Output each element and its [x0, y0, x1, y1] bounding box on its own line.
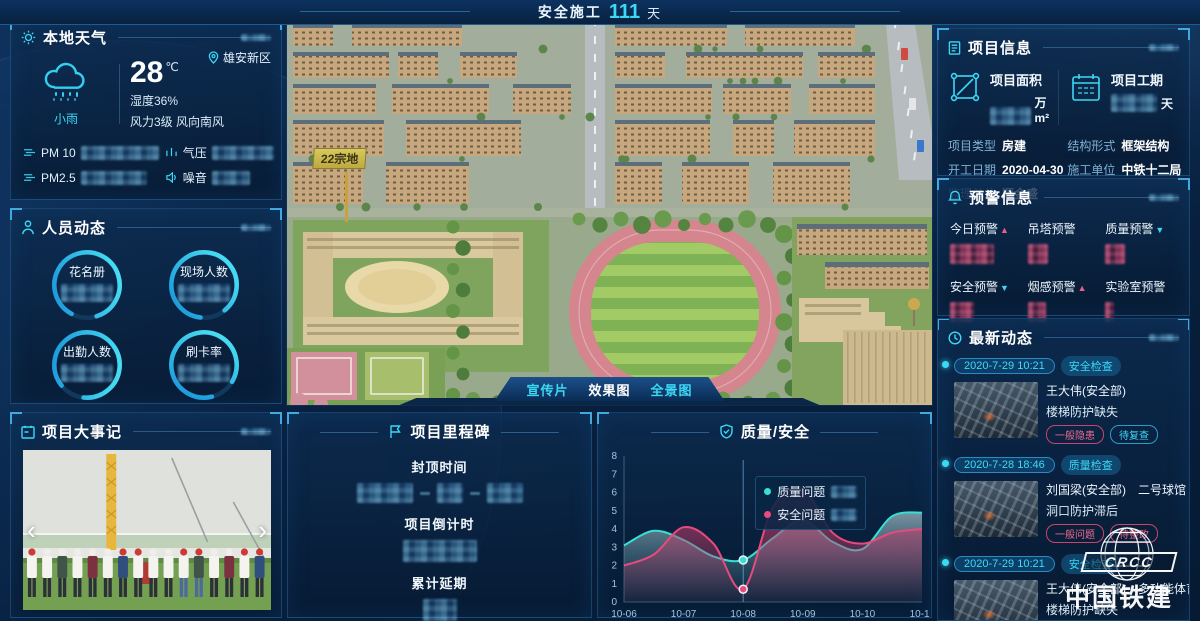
safe-days-unit: 天: [647, 3, 662, 22]
trend-up-icon: ▲: [1000, 225, 1009, 235]
timeline-dot-icon: [942, 460, 949, 467]
panel-title: 项目信息: [968, 37, 1032, 58]
alert-today: 今日预警▲: [950, 220, 1022, 264]
clock-icon: [948, 331, 962, 345]
panel-title: 最新动态: [969, 327, 1033, 348]
feed-issue: 洞口防护滞后: [1046, 502, 1179, 519]
panel-title: 预警信息: [969, 187, 1033, 208]
milestone-topping-time: 封顶时间: [288, 457, 591, 503]
milestone-countdown: 项目倒计时: [288, 514, 591, 562]
field-contractor: 施工单位中铁十二局: [1067, 161, 1181, 178]
document-icon: [948, 41, 961, 55]
panel-latest-feed: 最新动态 2020-7-29 10:21 安全检查 王大伟(安全部) 楼梯防护缺…: [937, 318, 1190, 621]
timeline-dot-icon: [942, 361, 949, 368]
panel-title: 人员动态: [42, 217, 106, 238]
svg-text:1: 1: [611, 579, 617, 590]
quality-safety-chart: 01234567810-0610-0710-0810-0910-1010-11 …: [598, 446, 931, 621]
svg-text:8: 8: [611, 451, 617, 462]
field-structure-form: 结构形式框架结构: [1067, 137, 1181, 154]
tab-panorama[interactable]: 全景图: [651, 380, 693, 399]
feed-time: 2020-7-29 10:21: [954, 556, 1055, 572]
feed-person: 王大伟(安全部): [1046, 382, 1126, 399]
tab-promo-video[interactable]: 宣传片: [526, 380, 568, 399]
gauge-swipe-rate: 刷卡率: [156, 328, 252, 402]
alert-crane: 吊塔预警: [1028, 220, 1100, 264]
divider: [119, 64, 120, 124]
top-header: 安全施工 111 天: [0, 0, 1200, 25]
trend-down-icon: ▼: [1000, 283, 1009, 293]
svg-text:10-08: 10-08: [730, 609, 756, 620]
feed-thumbnail[interactable]: [954, 481, 1038, 537]
stat-project-area: 项目面积 万m²: [948, 70, 1058, 125]
svg-text:10-10: 10-10: [850, 609, 876, 620]
panel-quality-safety: 质量/安全 01234567810-0610-0710-0810-0910-10…: [597, 412, 932, 618]
svg-text:10-09: 10-09: [790, 609, 816, 620]
metric-pressure: 气压: [165, 144, 274, 161]
alert-quality: 质量预警▼: [1105, 220, 1177, 264]
gauge-attendance: 出勤人数: [39, 328, 135, 402]
person-icon: [21, 220, 35, 235]
sun-icon: [21, 30, 36, 45]
temperature-value: 28: [130, 58, 163, 88]
legend-quality: 质量问题: [777, 483, 825, 500]
milestone-delay: 累计延期: [288, 573, 591, 621]
feed-type-badge: 安全检查: [1061, 356, 1121, 376]
feed-person: 刘国梁(安全部): [1046, 481, 1126, 498]
svg-text:6: 6: [611, 488, 617, 499]
panel-title: 项目里程碑: [410, 421, 490, 442]
wind: 风力3级 风向南风: [130, 113, 269, 130]
plot-label: 22宗地: [312, 148, 367, 169]
svg-text:10-07: 10-07: [671, 609, 697, 620]
alert-safety: 安全预警▼: [950, 278, 1022, 322]
location-pin-icon: [208, 51, 219, 64]
scene-tabs: 宣传片 效果图 全景图: [495, 377, 725, 401]
alert-lab: 实验室预警: [1105, 278, 1177, 322]
panel-title: 本地天气: [43, 27, 107, 48]
trend-up-icon: ▲: [1078, 283, 1087, 293]
gauge-onsite: 现场人数: [156, 248, 252, 322]
svg-text:0: 0: [611, 597, 617, 608]
feed-thumbnail[interactable]: [954, 580, 1038, 621]
haze-icon: [23, 172, 36, 183]
metric-pm25: PM2.5: [23, 169, 159, 186]
header-decoration: [133, 426, 271, 438]
severity-tag: 一般问题: [1046, 524, 1104, 543]
feed-time: 2020-7-29 10:21: [954, 358, 1055, 374]
metric-pm10: PM 10: [23, 144, 159, 161]
location-badge: 雄安新区: [208, 49, 271, 66]
svg-text:4: 4: [611, 524, 617, 535]
header-decoration: [1044, 192, 1179, 204]
feed-time: 2020-7-28 18:46: [954, 457, 1055, 473]
event-photo: ‹ ›: [23, 450, 271, 610]
svg-text:10-06: 10-06: [611, 609, 637, 620]
tab-rendering[interactable]: 效果图: [588, 380, 630, 399]
scene-3d-view[interactable]: 22宗地 宣传片 效果图 全景图: [287, 12, 932, 405]
header-decoration: [1044, 332, 1179, 344]
location-name: 雄安新区: [223, 49, 271, 66]
alert-smoke: 烟感预警▲: [1028, 278, 1100, 322]
shield-check-icon: [719, 424, 734, 439]
safe-days-label: 安全施工: [538, 2, 602, 22]
feed-type-badge: 质量检查: [1061, 455, 1121, 475]
panel-project-info: 项目信息 项目面积 万m² 项目工期 天: [937, 28, 1190, 176]
speaker-icon: [165, 172, 178, 183]
svg-text:3: 3: [611, 542, 617, 553]
field-project-type: 项目类型房建: [948, 137, 1063, 154]
legend-safety: 安全问题: [777, 506, 825, 523]
status-tag: 待复查: [1110, 425, 1158, 444]
feed-place: 多功能体育馆: [1138, 580, 1190, 597]
weather-condition: 小雨: [23, 110, 109, 127]
panel-local-weather: 本地天气 雄安新区 小雨 28 ℃ 湿度36% 风: [10, 18, 282, 200]
feed-thumbnail[interactable]: [954, 382, 1038, 438]
feed-item[interactable]: 2020-7-28 18:46 质量检查 刘国梁(安全部)二号球馆 洞口防护滞后…: [954, 455, 1179, 543]
photo-prev-button[interactable]: ‹: [25, 515, 38, 545]
panel-personnel: 人员动态 花名册 现场人数 出勤人数 刷卡率: [10, 208, 282, 404]
metric-noise: 噪音: [165, 169, 274, 186]
svg-text:2: 2: [611, 561, 617, 572]
header-decoration: [118, 32, 271, 44]
calendar-note-icon: [21, 425, 35, 439]
feed-issue: 楼梯防护缺失: [1046, 601, 1179, 618]
svg-text:5: 5: [611, 506, 617, 517]
dashboard-root: 安全施工 111 天 本地天气 雄安新区 小雨: [0, 0, 1200, 621]
panel-title: 项目大事记: [42, 421, 122, 442]
cloud-rain-icon: [40, 61, 92, 103]
flag-icon: [388, 424, 403, 439]
svg-text:10-11: 10-11: [910, 609, 929, 620]
trend-down-icon: ▼: [1155, 225, 1164, 235]
feed-person: 王大伟(安全部): [1046, 580, 1126, 597]
timeline-dot-icon: [942, 559, 949, 566]
calendar-icon: [1069, 70, 1103, 104]
feed-issue: 楼梯防护缺失: [1046, 403, 1179, 420]
field-start-date: 开工日期2020-04-30: [948, 161, 1063, 178]
bell-icon: [948, 190, 962, 205]
panel-alerts: 预警信息 今日预警▲ 吊塔预警 质量预警▼ 安全预警▼ 烟感预警▲: [937, 178, 1190, 316]
panel-milestone-events: 项目大事记 ‹ ›: [10, 412, 282, 618]
svg-text:7: 7: [611, 469, 617, 480]
haze-icon: [23, 147, 36, 158]
photo-next-button[interactable]: ›: [256, 515, 269, 545]
gauge-roster: 花名册: [39, 248, 135, 322]
feed-item[interactable]: 2020-7-29 10:21 安全检查 王大伟(安全部)多功能体育馆 楼梯防护…: [954, 554, 1179, 621]
safe-days-value: 111: [609, 2, 640, 22]
status-tag: 待整改: [1110, 524, 1158, 543]
chart-tooltip: 质量问题 安全问题: [755, 476, 866, 530]
panel-title: 质量/安全: [741, 421, 810, 442]
feed-place: 二号球馆: [1138, 481, 1186, 498]
feed-type-badge: 安全检查: [1061, 554, 1121, 574]
header-decoration: [1043, 42, 1179, 54]
pressure-gauge-icon: [165, 147, 178, 158]
panel-project-milestone: 项目里程碑 封顶时间 项目倒计时 累计延期: [287, 412, 592, 618]
severity-tag: 一般隐患: [1046, 425, 1104, 444]
temperature-unit: ℃: [165, 60, 178, 74]
feed-item[interactable]: 2020-7-29 10:21 安全检查 王大伟(安全部) 楼梯防护缺失 一般隐…: [954, 356, 1179, 444]
header-decoration: [117, 222, 271, 234]
stat-project-duration: 项目工期 天: [1058, 70, 1179, 125]
area-measure-icon: [948, 70, 982, 104]
humidity: 湿度36%: [130, 92, 269, 109]
